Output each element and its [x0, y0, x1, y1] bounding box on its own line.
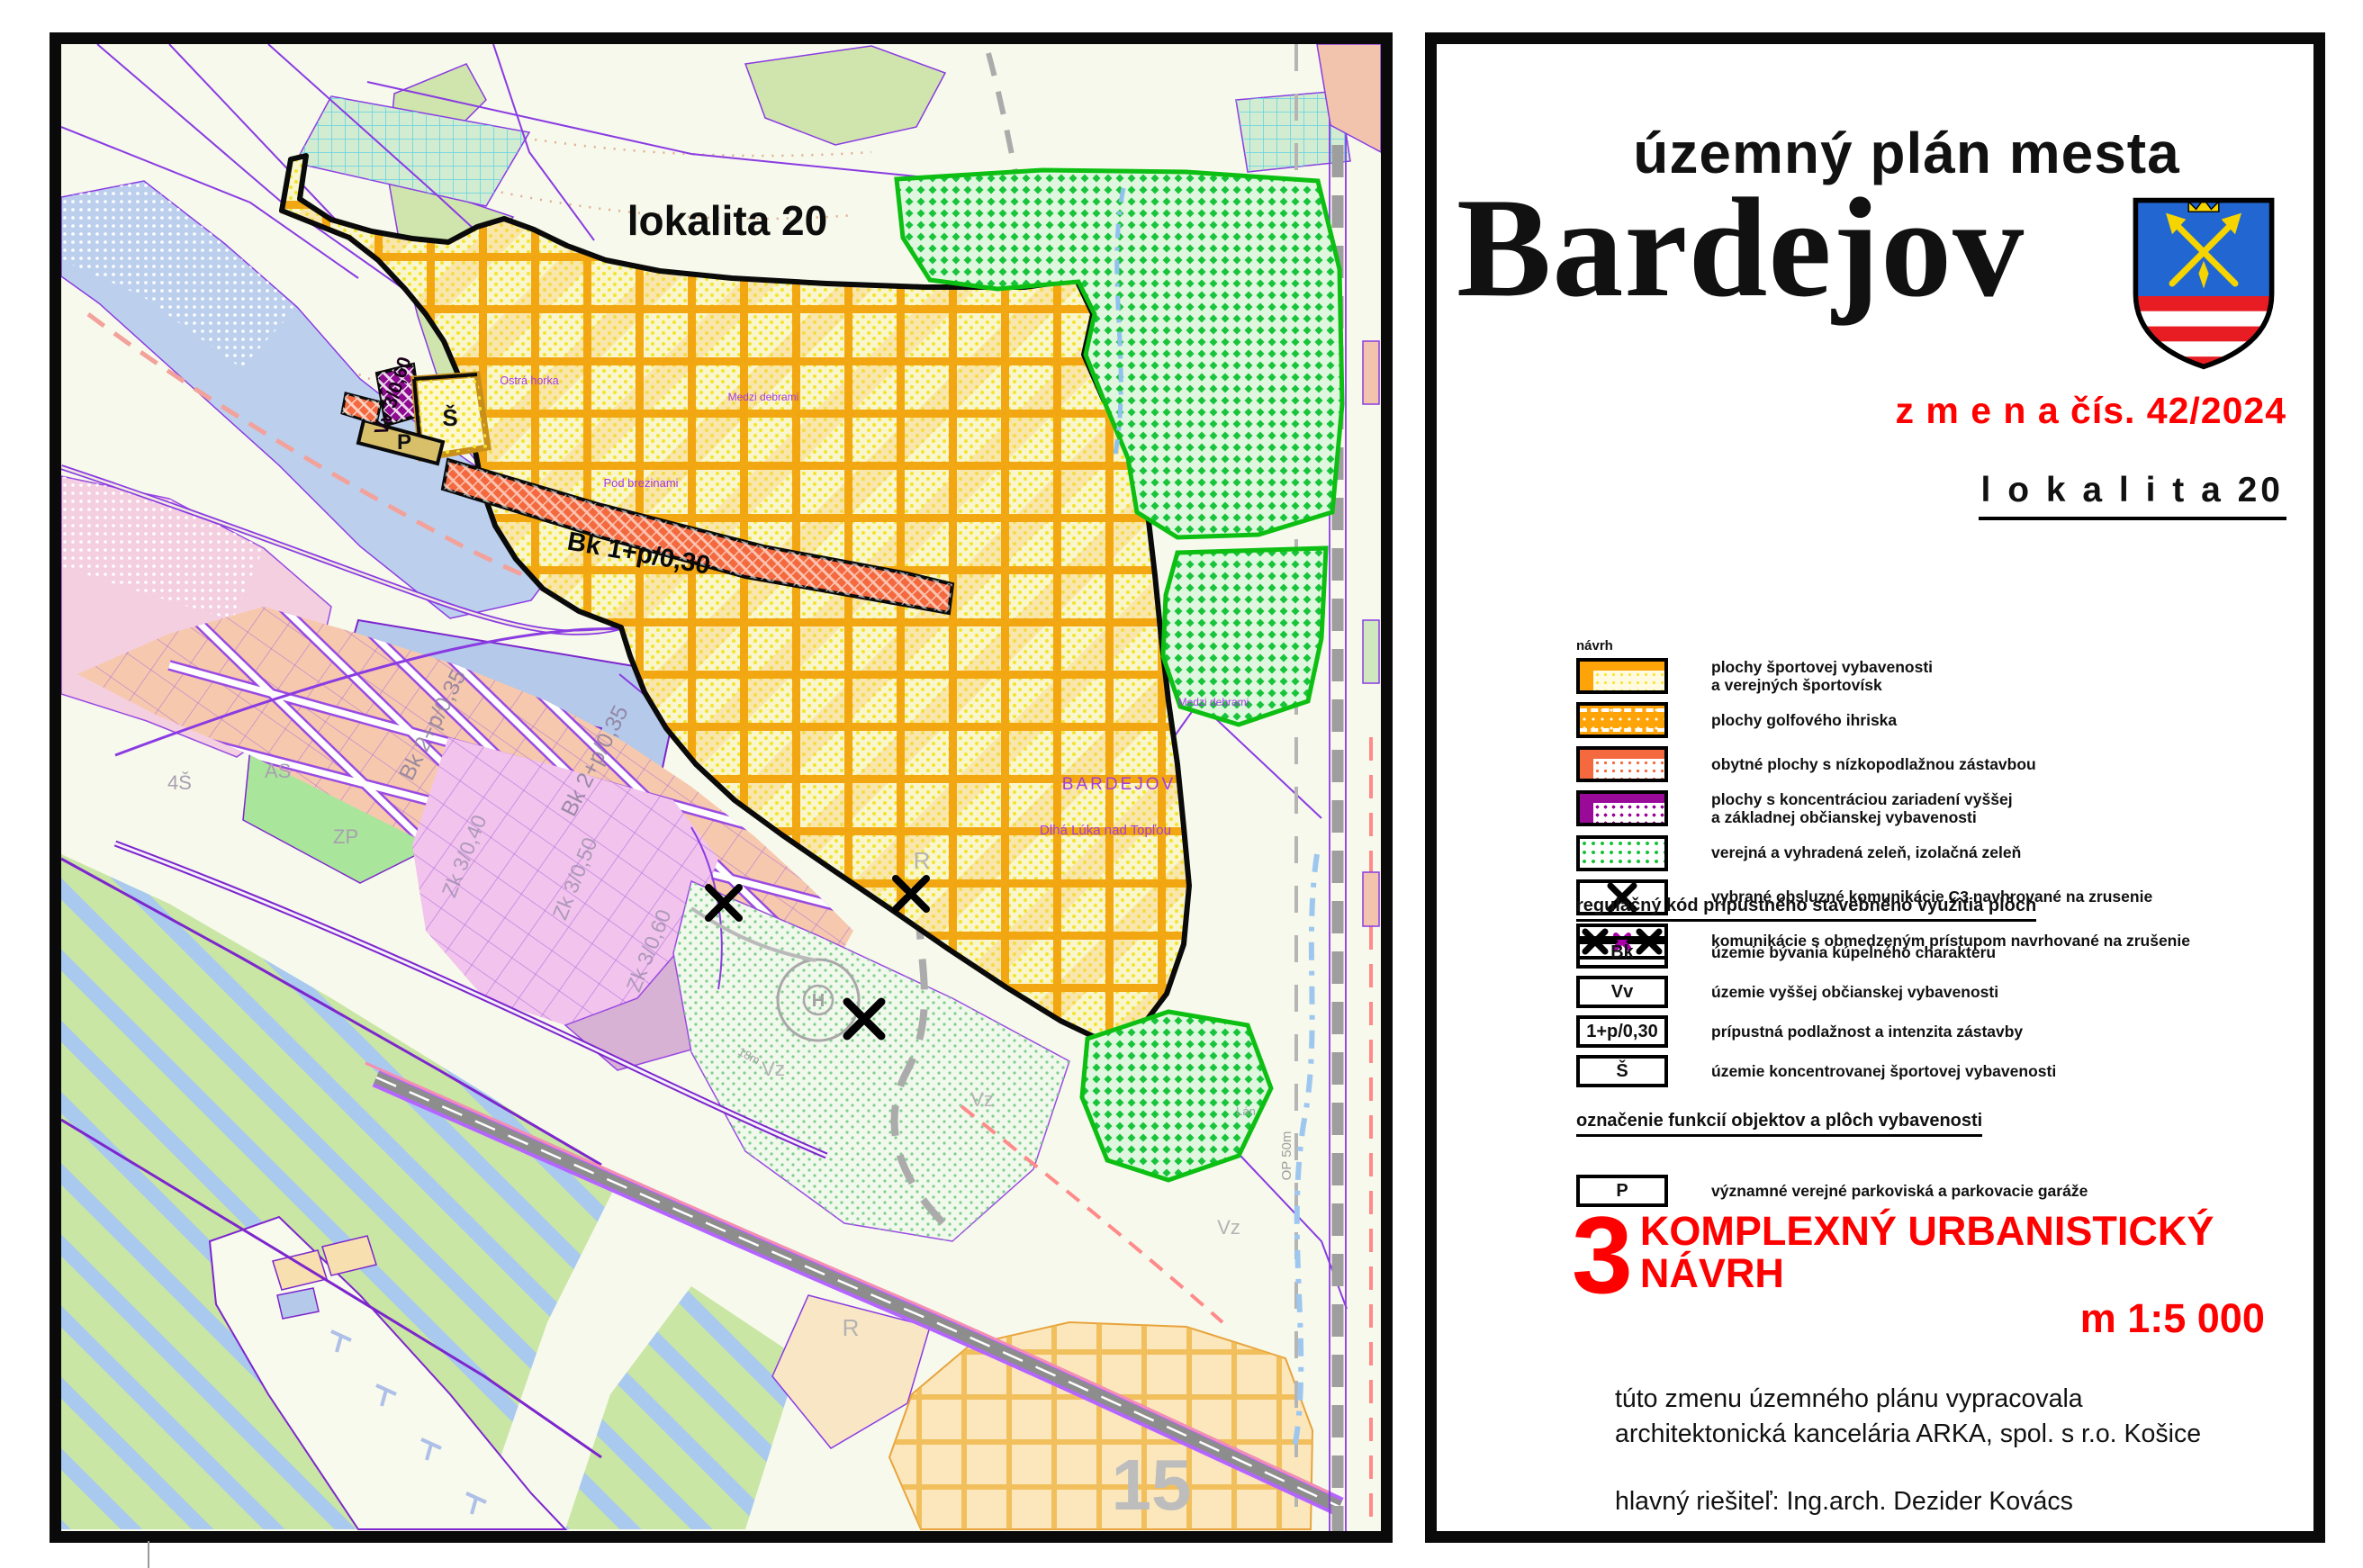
place-label-medzi-debrami-1: Medzi debrami — [728, 391, 799, 403]
code-row: 1+p/0,30 prípustná podlažnost a intenzit… — [1576, 1015, 2305, 1048]
functions-heading: označenie funkcií objektov a plôch vybav… — [1576, 1111, 1982, 1137]
legend-label: plochy golfového ihriska — [1711, 711, 1897, 729]
misc-label-r1: R — [914, 847, 931, 874]
misc-label-vz1: Vz — [762, 1058, 785, 1080]
zone-label-as: AS — [265, 760, 291, 782]
code-row: Vv územie vyššej občianskej vybavenosti — [1576, 976, 2305, 1008]
place-label-medzi-debrami-2: Medzi debrami — [1178, 696, 1249, 708]
legend-label: plochy s koncentráciou zariadení vyššej — [1711, 790, 2013, 808]
place-label-dlha-luka: Dlhá Lúka nad Topľou — [1040, 823, 1171, 838]
zone-label-zp: ZP — [333, 825, 358, 848]
legend-label: plochy športovej vybavenosti — [1711, 658, 1933, 676]
code-box-vv: Vv — [1576, 976, 1668, 1008]
credit-line-4: dátum vypracovania: 2024 — [1615, 1564, 2274, 1568]
place-label-bardejov: BARDEJOV — [1062, 775, 1176, 794]
code-box-s: Š — [1576, 1055, 1668, 1087]
sheet-scale: m 1:5 000 — [1640, 1295, 2270, 1342]
legend-label: obytné plochy s nízkopodlažnou zástavbou — [1711, 755, 2036, 773]
code-box-floors: 1+p/0,30 — [1576, 1015, 1668, 1048]
codes-heading: regulačný kód prípustného stavebného vyu… — [1576, 896, 2036, 922]
misc-label-vz3: Vz — [1217, 1216, 1240, 1239]
heliport-label: H — [812, 991, 825, 1011]
legend-item: obytné plochy s nízkopodlažnou zástavbou — [1576, 746, 2305, 782]
credit-line-3: hlavný riešiteľ: Ing.arch. Dezider Kovác… — [1615, 1484, 2274, 1519]
legend-item: verejná a vyhradená zeleň, izolačná zele… — [1576, 835, 2305, 871]
legend-swatch-golf — [1576, 702, 1668, 738]
place-label-pod-brezinami: Pod brezinami — [603, 476, 678, 490]
map-title: lokalita 20 — [627, 197, 827, 244]
legend-swatch-residential — [1576, 746, 1668, 782]
urban-plan-map: H — [61, 44, 1381, 1531]
misc-label-vz2: Vz — [970, 1088, 994, 1111]
plan-title-city: Bardejov — [1457, 177, 2025, 320]
regulation-codes: regulačný kód prípustného stavebného vyu… — [1576, 896, 2305, 1214]
map-panel: H — [50, 32, 1393, 1543]
legend-swatch-public-amenities — [1576, 790, 1668, 826]
legend-label: a základnej občianskej vybavenosti — [1711, 808, 2013, 826]
plan-sheet: H — [0, 0, 2363, 1568]
legend-item: plochy s koncentráciou zariadení vyššej … — [1576, 790, 2305, 826]
place-label-lan: Lán — [1236, 1104, 1256, 1118]
zone-label-sport: Š — [442, 404, 457, 431]
legend-swatch-greenery — [1576, 835, 1668, 871]
place-label-ostra-horka: Ostrá horka — [500, 374, 558, 387]
zone-label-4s: 4Š — [167, 771, 192, 794]
legend-label: a verejných športovísk — [1711, 676, 1933, 694]
code-label: územie vyššej občianskej vybavenosti — [1711, 983, 1998, 1001]
bardejov-coat-of-arms-icon — [2121, 195, 2286, 372]
code-row: P významné verejné parkoviská a parkovac… — [1576, 1175, 2305, 1207]
legend-item: plochy športovej vybavenosti a verejných… — [1576, 658, 2305, 694]
code-label: územie koncentrovanej športovej vybaveno… — [1711, 1062, 2056, 1080]
change-number-label: z m e n a čís. 42/2024 — [1895, 390, 2286, 432]
credit-line-1: túto zmenu územného plánu vypracovala — [1615, 1382, 2274, 1417]
margin-tick — [148, 1541, 149, 1568]
sheet-footer: 3 KOMPLEXNÝ URBANISTICKÝ NÁVRH m 1:5 000… — [1572, 1210, 2274, 1568]
code-label: prípustná podlažnost a intenzita zástavb… — [1711, 1023, 2023, 1041]
code-row: Bk územie bývania kúpelného charakteru — [1576, 936, 2305, 969]
locality-label: l o k a l i t a 20 — [1979, 471, 2286, 520]
credit-line-2: architektonická kancelária ARKA, spol. s… — [1615, 1417, 2274, 1452]
sheet-number: 3 — [1572, 1210, 1633, 1300]
sheet-title: KOMPLEXNÝ URBANISTICKÝ NÁVRH — [1640, 1210, 2270, 1295]
legend-item: plochy golfového ihriska — [1576, 702, 2305, 738]
legend-title: návrh — [1576, 638, 2305, 653]
code-label: územie bývania kúpelného charakteru — [1711, 943, 1996, 961]
legend-swatch-sport — [1576, 658, 1668, 694]
zone-label-parking: P — [397, 430, 411, 455]
misc-label-sheet-15: 15 — [1112, 1445, 1192, 1525]
misc-label-op50: OP 50m — [1279, 1131, 1294, 1181]
info-panel: územný plán mesta Bardejov z m e — [1425, 32, 2325, 1543]
misc-label-r2: R — [843, 1314, 860, 1341]
code-label: významné verejné parkoviská a parkovacie… — [1711, 1182, 2088, 1200]
code-box-bk: Bk — [1576, 936, 1668, 969]
code-row: Š územie koncentrovanej športovej vybave… — [1576, 1055, 2305, 1087]
legend-label: verejná a vyhradená zeleň, izolačná zele… — [1711, 843, 2021, 861]
